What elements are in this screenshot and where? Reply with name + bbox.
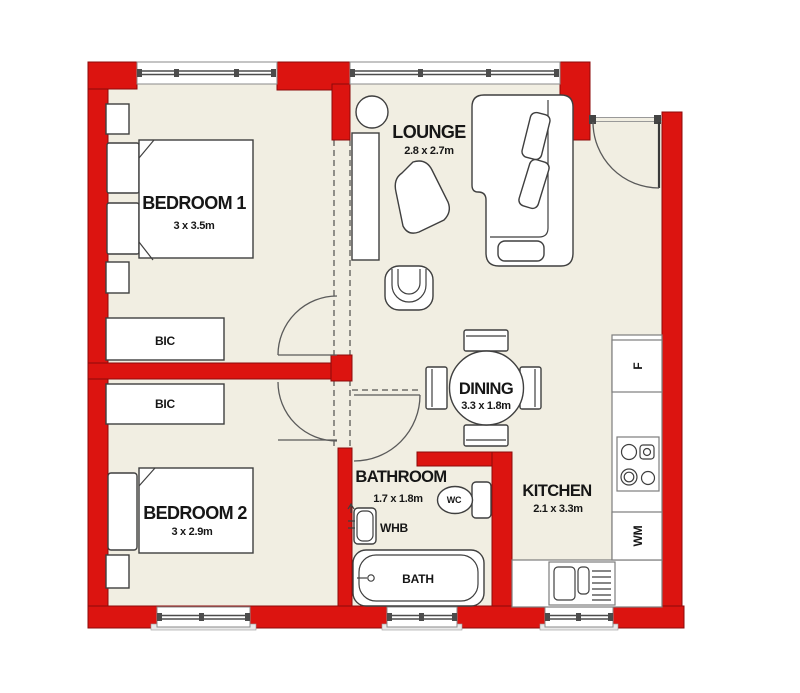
kitchen-label: KITCHEN <box>522 482 591 500</box>
sofa-seat-cushion <box>498 241 544 261</box>
wall-segment-right <box>662 112 682 628</box>
stove <box>617 437 659 491</box>
bathroom-label: BATHROOM <box>355 468 446 486</box>
wall-corner-top-left <box>88 62 137 89</box>
dining-chair <box>426 367 447 409</box>
dining-chair <box>464 425 508 446</box>
bic1-label: BIC <box>155 334 176 348</box>
bedroom1-label: BEDROOM 1 <box>142 193 246 213</box>
plant <box>356 96 388 128</box>
wc-label: WC <box>447 495 462 505</box>
pillow <box>108 473 137 550</box>
nightstand <box>106 555 129 588</box>
bath-label: BATH <box>402 572 434 586</box>
armchair <box>385 266 433 310</box>
dining-label: DINING <box>459 380 513 398</box>
dining-dims: 3.3 x 1.8m <box>461 400 511 412</box>
lounge-dims: 2.8 x 2.7m <box>404 145 454 157</box>
nightstand <box>106 262 129 293</box>
wall-bathroom-left <box>338 448 352 606</box>
lounge-label: LOUNGE <box>392 122 466 142</box>
window-kitchen-bottom <box>540 607 618 630</box>
wall-segment-left <box>88 62 108 628</box>
window-bedroom1-top <box>137 62 277 84</box>
tv-unit <box>352 133 379 260</box>
whb-label: WHB <box>380 521 409 535</box>
bic2-label: BIC <box>155 397 176 411</box>
bathroom-dims: 1.7 x 1.8m <box>373 493 423 505</box>
bedroom1-dims: 3 x 3.5m <box>173 220 215 232</box>
bedroom2-dims: 3 x 2.9m <box>171 526 213 538</box>
window-bedroom2-bottom <box>151 607 256 630</box>
floor-plan: BEDROOM 1 3 x 3.5m BEDROOM 2 3 x 2.9m LO… <box>0 0 800 693</box>
pillow <box>107 203 139 254</box>
exterior-area <box>586 40 706 118</box>
fridge-label: F <box>631 362 645 369</box>
window-bathroom-bottom <box>382 607 462 630</box>
kitchen-dims: 2.1 x 3.3m <box>533 503 583 515</box>
floor-plan-image: BEDROOM 1 3 x 3.5m BEDROOM 2 3 x 2.9m LO… <box>0 0 800 693</box>
washing-machine-label: WM <box>631 525 645 546</box>
wall-bedroom-divider <box>88 363 333 379</box>
wall-stub-hall-top <box>332 84 350 140</box>
window-lounge-top <box>350 62 560 84</box>
dining-chair <box>464 330 508 351</box>
wall-bathroom-right <box>492 452 512 606</box>
pillow <box>107 143 139 193</box>
kitchen-sink <box>549 562 615 605</box>
bedroom2-label: BEDROOM 2 <box>143 503 247 523</box>
wall-divider-stub <box>331 355 352 381</box>
nightstand <box>106 104 129 134</box>
